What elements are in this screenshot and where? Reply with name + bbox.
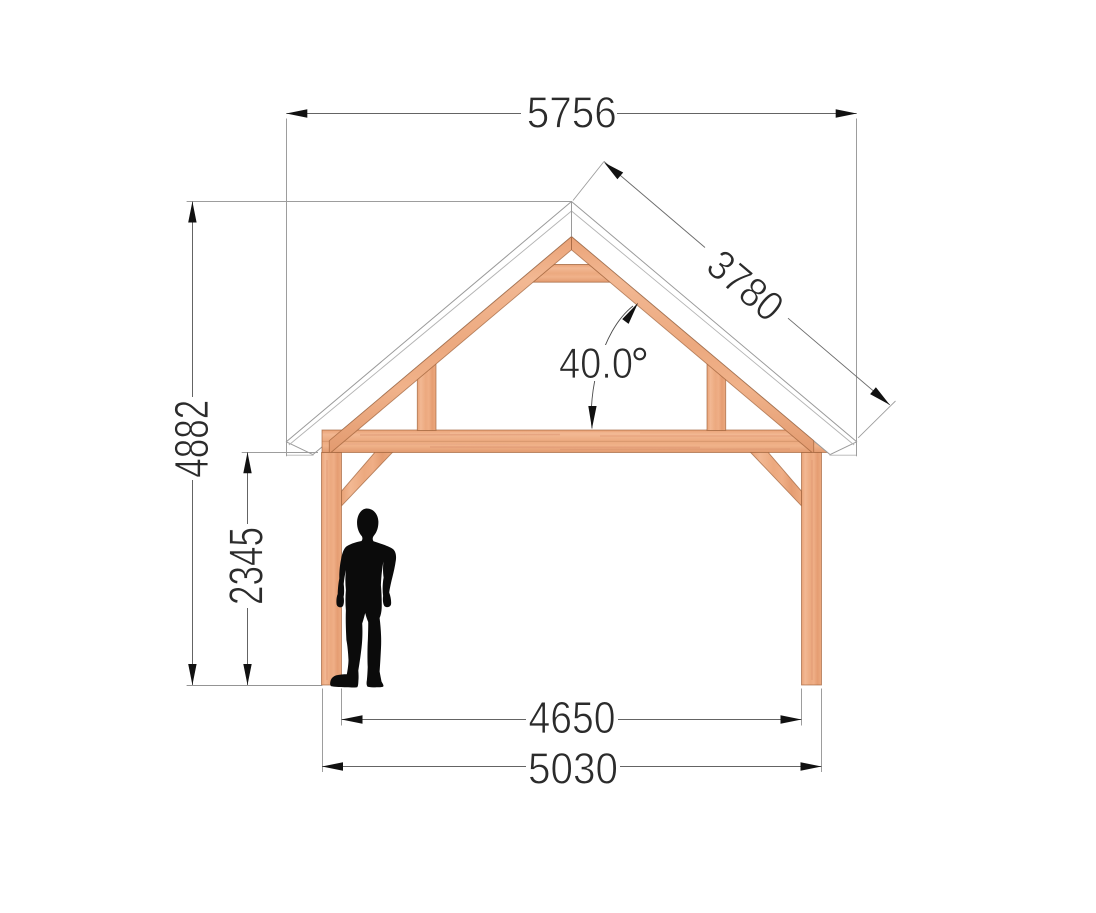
svg-text:4650: 4650 — [529, 692, 616, 743]
svg-text:5756: 5756 — [527, 89, 617, 138]
svg-text:2345: 2345 — [221, 527, 274, 605]
svg-text:5030: 5030 — [528, 745, 618, 794]
svg-text:4882: 4882 — [166, 400, 219, 478]
svg-text:40.0: 40.0 — [559, 340, 633, 388]
